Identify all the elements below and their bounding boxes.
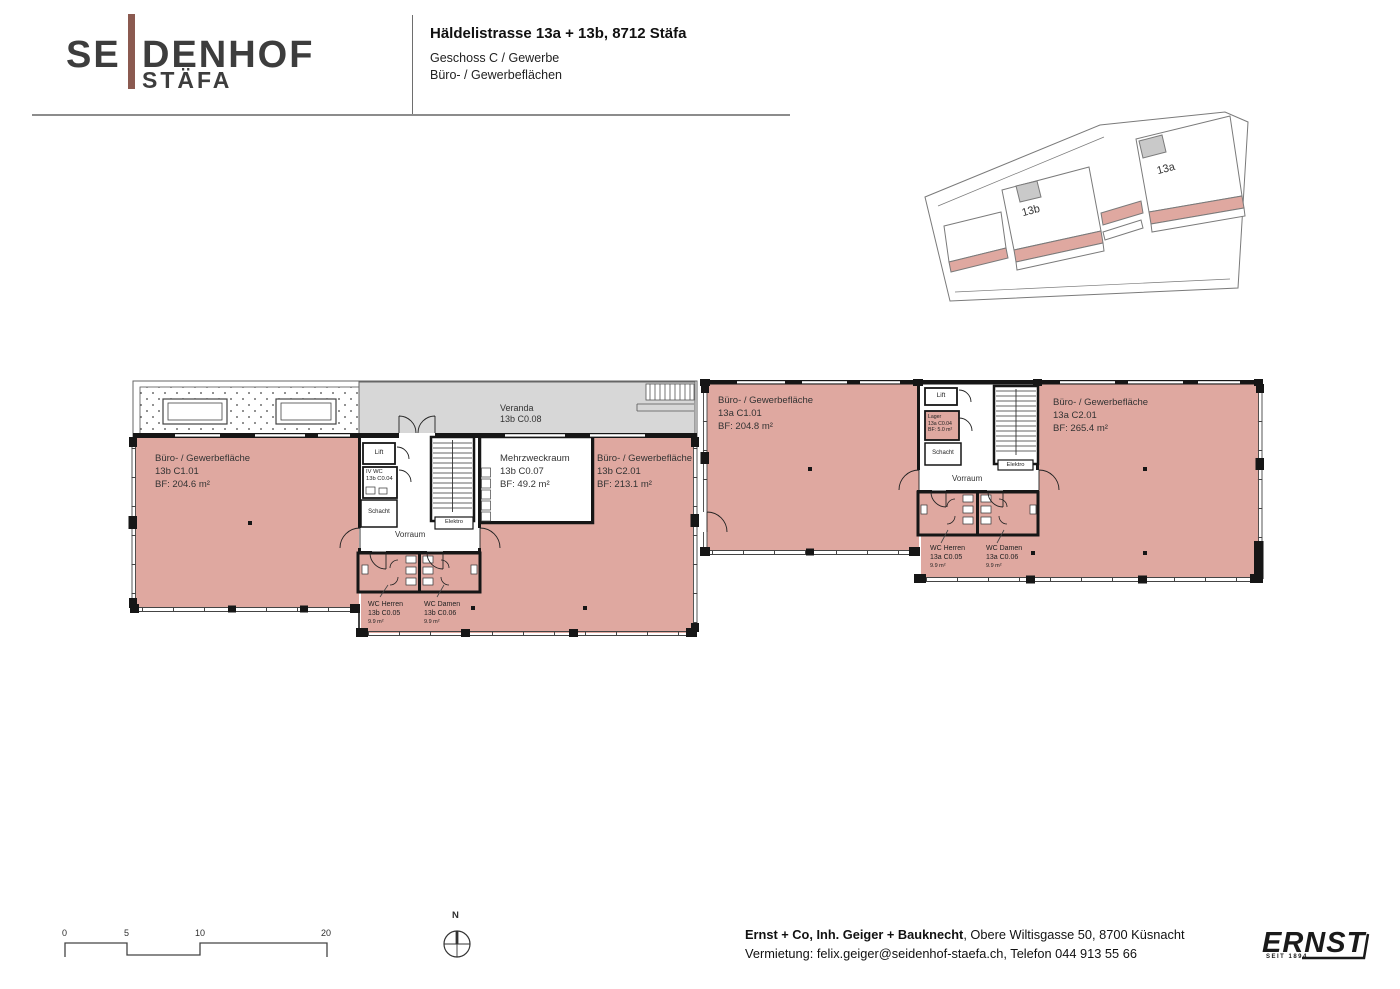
room-area: 9.9 m² (424, 618, 460, 627)
footer-line-1: Ernst + Co, Inh. Geiger + Bauknecht, Obe… (745, 927, 1185, 943)
room-label-13a-lift: Lift (925, 392, 957, 400)
room-label-13a-schacht: Schacht (925, 450, 961, 458)
floor-plan-page: SE DENHOF STÄFA Häldelistrasse 13a + 13b… (0, 0, 1400, 989)
scale-tick-20: 20 (321, 928, 331, 939)
room-name: Büro- / Gewerbefläche (597, 452, 692, 465)
room-label-13b-lift: Lift (363, 449, 395, 457)
room-id: 13a C2.01 (1053, 409, 1148, 422)
scale-tick-0: 0 (62, 928, 67, 939)
room-label-13b-mehrzweckraum: Mehrzweckraum 13b C0.07 BF: 49.2 m² (500, 452, 570, 491)
room-name: WC Damen (986, 544, 1022, 553)
room-name: Veranda (500, 403, 542, 414)
room-id: 13a C0.05 (930, 553, 965, 562)
room-label-13a-vorraum: Vorraum (952, 474, 982, 484)
footer-company: Ernst + Co, Inh. Geiger + Bauknecht (745, 927, 963, 942)
room-name: Büro- / Gewerbefläche (1053, 396, 1148, 409)
room-label-13b-c101: Büro- / Gewerbefläche 13b C1.01 BF: 204.… (155, 452, 250, 491)
scale-bar (65, 943, 327, 957)
room-id: 13a C1.01 (718, 407, 813, 420)
room-area: BF: 265.4 m² (1053, 422, 1148, 435)
room-area: BF: 5.0 m² (928, 427, 952, 434)
room-label-13b-wc-damen: WC Damen 13b C0.06 9.9 m² (424, 600, 460, 627)
room-area: 9.9 m² (986, 562, 1022, 571)
room-name: WC Damen (424, 600, 460, 609)
room-label-13a-lager: Lager 13a C0.04 BF: 5.0 m² (928, 414, 952, 434)
floor-plan-drawing (0, 0, 1400, 989)
room-id: 13b C0.06 (424, 609, 460, 618)
site-plan-key (925, 112, 1248, 301)
room-label-13b-iv-wc: IV WC 13b C0.04 (366, 469, 393, 483)
scale-tick-5: 5 (124, 928, 129, 939)
north-compass-icon (444, 931, 470, 957)
room-id: 13b C2.01 (597, 465, 692, 478)
room-label-13b-schacht: Schacht (361, 509, 397, 517)
room-name: IV WC (366, 469, 393, 476)
room-id: 13a C0.06 (986, 553, 1022, 562)
footer-line-2: Vermietung: felix.geiger@seidenhof-staef… (745, 946, 1137, 962)
room-area: BF: 49.2 m² (500, 478, 570, 491)
ernst-logo-subtext: SEIT 1894 (1266, 954, 1308, 962)
room-name: WC Herren (368, 600, 403, 609)
room-label-13b-c201: Büro- / Gewerbefläche 13b C2.01 BF: 213.… (597, 452, 692, 491)
room-id: 13b C0.05 (368, 609, 403, 618)
room-area: 9.9 m² (930, 562, 965, 571)
room-area: BF: 204.8 m² (718, 420, 813, 433)
room-label-13b-veranda: Veranda 13b C0.08 (500, 403, 542, 425)
compass-north-label: N (452, 910, 459, 922)
room-id: 13b C0.07 (500, 465, 570, 478)
room-label-13a-c201: Büro- / Gewerbefläche 13a C2.01 BF: 265.… (1053, 396, 1148, 435)
room-area: BF: 204.6 m² (155, 478, 250, 491)
footer-address: , Obere Wiltisgasse 50, 8700 Küsnacht (963, 927, 1184, 942)
room-name: Büro- / Gewerbefläche (155, 452, 250, 465)
room-label-13b-wc-herren: WC Herren 13b C0.05 9.9 m² (368, 600, 403, 627)
room-id: 13b C0.08 (500, 414, 542, 425)
room-area: 9.9 m² (368, 618, 403, 627)
room-area: BF: 213.1 m² (597, 478, 692, 491)
room-label-13b-elektro: Elektro (435, 519, 473, 526)
room-id: 13b C1.01 (155, 465, 250, 478)
room-id: 13b C0.04 (366, 476, 393, 483)
room-name: Büro- / Gewerbefläche (718, 394, 813, 407)
room-label-13a-wc-herren: WC Herren 13a C0.05 9.9 m² (930, 544, 965, 571)
room-label-13a-wc-damen: WC Damen 13a C0.06 9.9 m² (986, 544, 1022, 571)
room-label-13a-c101: Büro- / Gewerbefläche 13a C1.01 BF: 204.… (718, 394, 813, 433)
room-label-13a-elektro: Elektro (998, 462, 1033, 469)
room-label-13b-vorraum: Vorraum (395, 530, 425, 540)
room-name: WC Herren (930, 544, 965, 553)
scale-tick-10: 10 (195, 928, 205, 939)
room-name: Mehrzweckraum (500, 452, 570, 465)
